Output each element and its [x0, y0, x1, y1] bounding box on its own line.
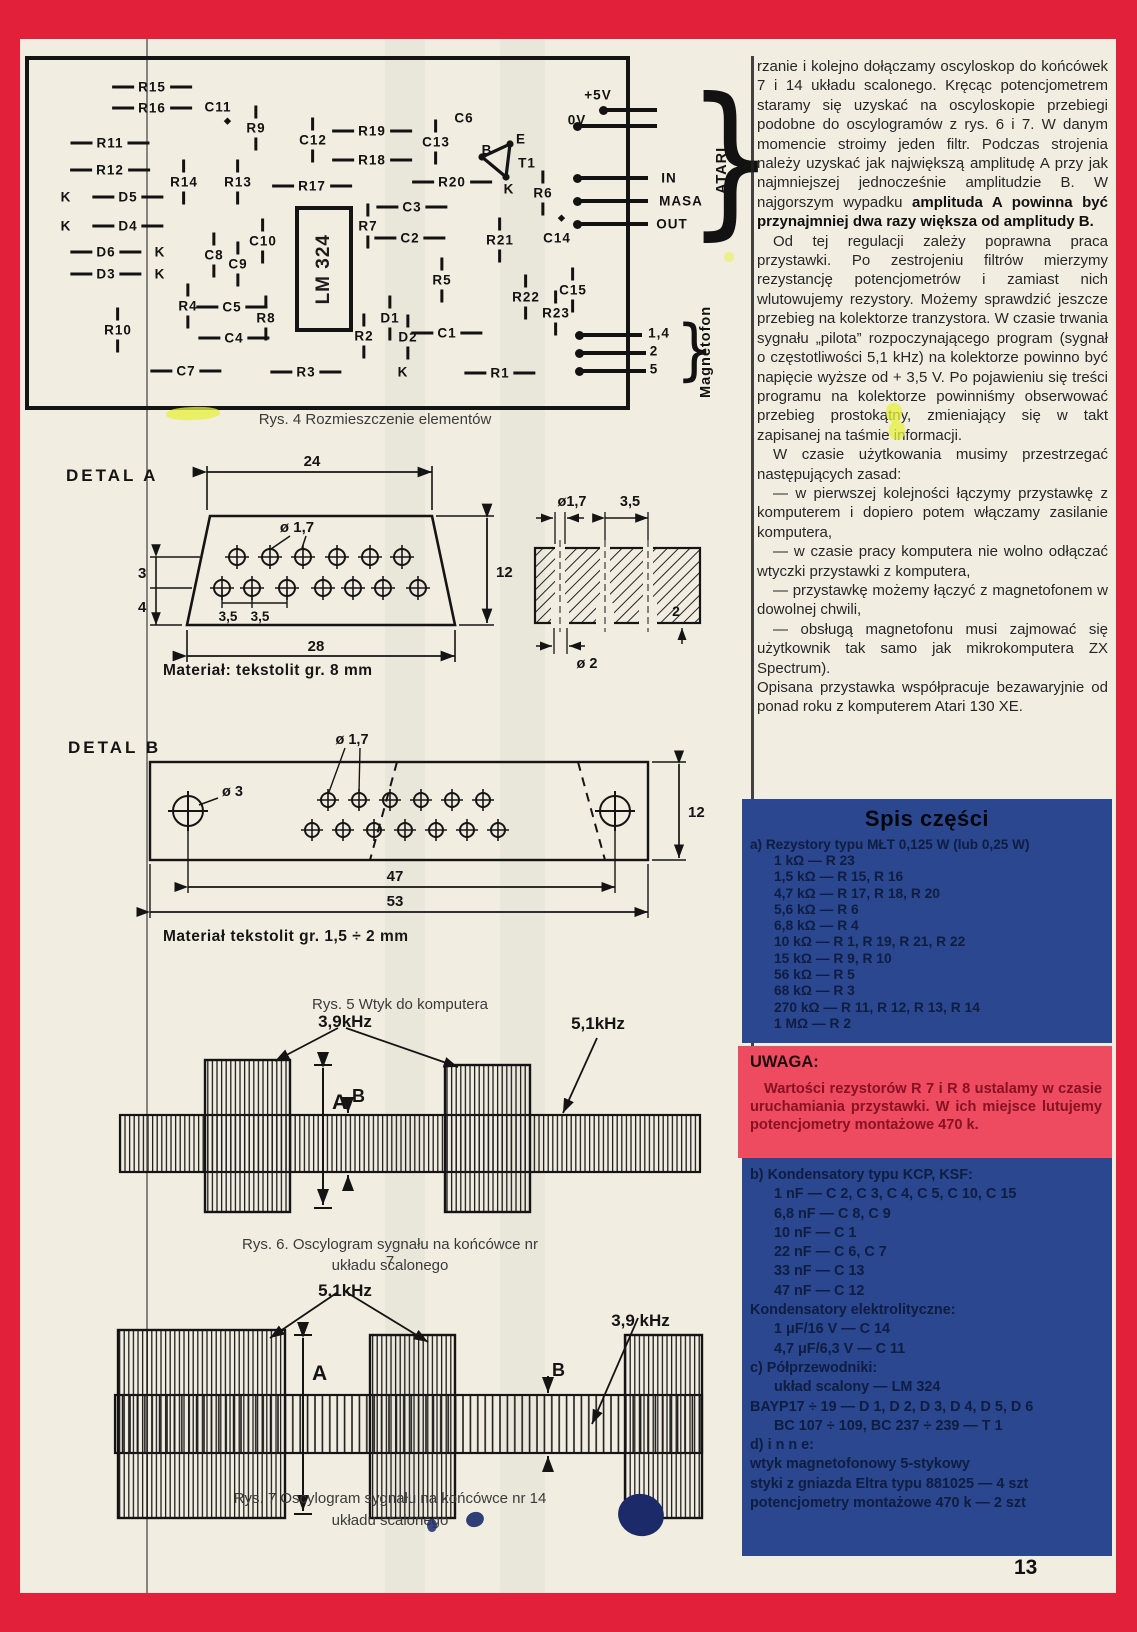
pcb-label: R5 [432, 256, 451, 305]
pcb-label: R13 [224, 158, 252, 207]
svg-text:28: 28 [308, 638, 325, 655]
pcb-label: R21 [486, 216, 514, 265]
parts-line: Kondensatory elektrolityczne: [750, 1301, 1104, 1320]
fig6-oscillogram: A B [100, 1012, 720, 1230]
pcb-wire [603, 108, 657, 112]
pcb-label: K [155, 267, 166, 282]
parts-line: d) i n n e: [750, 1436, 1104, 1455]
detal-b-drawing: ø 3 ø 1,7 12 47 53 [100, 700, 720, 935]
parts-resistors-lines: 1 kΩ — R 231,5 kΩ — R 15, R 164,7 kΩ — R… [742, 853, 1112, 1032]
pcb-label: IN [661, 171, 677, 186]
pcb-label: ◆ [558, 213, 566, 224]
pcb-wire [578, 222, 648, 226]
parts-line: 1 MΩ — R 2 [742, 1016, 1112, 1032]
pcb-solder-dot [575, 331, 584, 340]
pcb-label: K [61, 190, 72, 205]
parts-line: potencjometry montażowe 470 k — 2 szt [750, 1494, 1104, 1513]
parts-line: 4,7 kΩ — R 17, R 18, R 20 [742, 886, 1112, 902]
pcb-label: R14 [170, 158, 198, 207]
atari-connector-label: ATARI [714, 114, 730, 194]
parts-line: 22 nF — C 6, C 7 [750, 1243, 1104, 1262]
parts-line: 15 kΩ — R 9, R 10 [742, 951, 1112, 967]
pcb-wire [580, 369, 646, 373]
pcb-label: C14 [543, 231, 571, 246]
pcb-label: C13 [422, 118, 450, 167]
pcb-label: C7 [146, 364, 225, 379]
parts-line: 1 μF/16 V — C 14 [750, 1320, 1104, 1339]
pcb-label: D5 [88, 190, 167, 205]
pcb-solder-dot [575, 367, 584, 376]
pcb-wire [578, 199, 648, 203]
pcb-label: C10 [249, 217, 277, 266]
detal-b-material: Materiał tekstolit gr. 1,5 ÷ 2 mm [163, 928, 409, 946]
pcb-label: R15 [108, 80, 196, 95]
pcb-label: R22 [512, 273, 540, 322]
svg-text:ø 1,7: ø 1,7 [335, 732, 368, 748]
article-bullet: — przystawkę możemy łączyć z magnetofone… [757, 581, 1108, 620]
pcb-label: C12 [299, 116, 327, 165]
parts-list-box-resistors: Spis części a) Rezystory typu MŁT 0,125 … [742, 799, 1112, 1043]
highlighter-dot [724, 252, 734, 262]
parts-line: 68 kΩ — R 3 [742, 983, 1112, 999]
pcb-label: R6 [533, 169, 552, 218]
svg-text:B: B [352, 1086, 365, 1106]
fig5-caption: Rys. 5 Wtyk do komputera [275, 996, 525, 1013]
detal-a-material: Materiał: tekstolit gr. 8 mm [163, 662, 373, 680]
parts-resistors-header: a) Rezystory typu MŁT 0,125 W (lub 0,25 … [742, 832, 1112, 853]
svg-text:12: 12 [496, 564, 513, 581]
svg-text:3,5: 3,5 [251, 609, 270, 624]
transistor-t1-symbol [472, 134, 524, 192]
svg-text:2: 2 [672, 603, 680, 619]
parts-line: 6,8 kΩ — R 4 [742, 918, 1112, 934]
fig7-caption-line2: układu scalonego [220, 1512, 560, 1529]
pcb-wire [580, 351, 646, 355]
pcb-label: R16 [108, 101, 196, 116]
svg-text:24: 24 [304, 453, 321, 470]
parts-line: b) Kondensatory typu KCP, KSF: [750, 1166, 1104, 1185]
pcb-label: K [155, 245, 166, 260]
warning-title: UWAGA: [738, 1046, 1112, 1072]
pcb-label: R18 [328, 153, 416, 168]
pcb-label: R10 [104, 306, 132, 355]
highlighter-mark [889, 421, 905, 440]
pcb-wire [578, 176, 648, 180]
pcb-label: C1 [407, 326, 486, 341]
pcb-solder-dot [573, 220, 582, 229]
pcb-label: R11 [66, 136, 153, 151]
pcb-label: K [61, 219, 72, 234]
pcb-solder-dot [573, 197, 582, 206]
article-column: rzanie i kolejno dołączamy oscyloskop do… [757, 57, 1108, 717]
pcb-label: R1 [460, 366, 539, 381]
pcb-label: OUT [656, 217, 688, 232]
svg-text:B: B [552, 1360, 565, 1380]
article-paragraph: W czasie użytkowania musimy przestrzegać… [757, 445, 1108, 484]
svg-text:ø 3: ø 3 [222, 784, 243, 800]
svg-text:47: 47 [387, 868, 404, 885]
parts-line: 47 nF — C 12 [750, 1282, 1104, 1301]
article-paragraph: Od tej regulacji zależy poprawna praca p… [757, 232, 1108, 445]
parts-line: 4,7 μF/6,3 V — C 11 [750, 1340, 1104, 1359]
pcb-label: D6 [66, 245, 145, 260]
pcb-label: +5V [584, 88, 611, 103]
article-text: rzanie i kolejno dołączamy oscyloskop do… [757, 58, 1108, 211]
parts-line: 270 kΩ — R 11, R 12, R 13, R 14 [742, 1000, 1112, 1016]
parts-line: 10 nF — C 1 [750, 1224, 1104, 1243]
pcb-label: C2 [370, 231, 449, 246]
fig6-caption-line2: układu scalonego [240, 1257, 540, 1274]
pcb-label: R3 [266, 365, 345, 380]
warning-body: Wartości rezystorów R 7 i R 8 ustalamy w… [738, 1072, 1112, 1134]
pcb-label: R19 [328, 124, 416, 139]
svg-text:3,5: 3,5 [620, 494, 640, 510]
pcb-label: 1,4 [648, 326, 670, 341]
parts-line: 5,6 kΩ — R 6 [742, 902, 1112, 918]
svg-text:12: 12 [688, 804, 705, 821]
svg-text:ø1,7: ø1,7 [557, 494, 586, 510]
pcb-solder-dot [573, 174, 582, 183]
pcb-label: C8 [204, 231, 223, 280]
article-bullet: — obsługą magnetofonu musi zajmować się … [757, 620, 1108, 678]
pcb-solder-dot [599, 106, 608, 115]
parts-line: BAYP17 ÷ 19 — D 1, D 2, D 3, D 4, D 5, D… [750, 1398, 1104, 1417]
pcb-label: D1 [380, 294, 399, 343]
parts-line: wtyk magnetofonowy 5-stykowy [750, 1455, 1104, 1474]
pcb-solder-dot [573, 122, 582, 131]
magazine-page: R15R16C11◆R9C12R19C13C6R18R11R12R14R13R1… [0, 0, 1137, 1632]
fig4-caption: Rys. 4 Rozmieszczenie elementów [225, 411, 525, 428]
pcb-label: R2 [354, 312, 373, 361]
pcb-wire [580, 333, 642, 337]
pcb-label: D3 [66, 267, 145, 282]
parts-line: 1 kΩ — R 23 [742, 853, 1112, 869]
pcb-label: 2 [650, 344, 659, 359]
svg-text:3,5: 3,5 [219, 609, 238, 624]
pcb-label: R9 [246, 104, 265, 153]
parts-line: 6,8 nF — C 8, C 9 [750, 1205, 1104, 1224]
pcb-label: ◆ [224, 116, 232, 127]
svg-text:ø 2: ø 2 [577, 656, 598, 672]
parts-line: styki z gniazda Eltra typu 881025 — 4 sz… [750, 1475, 1104, 1494]
detal-a-drawing: 24 12 28 3 4 ø 1,7 3,5 3,5 [130, 440, 720, 692]
pcb-label: K [398, 365, 409, 380]
fig7-oscillogram: A B [90, 1278, 720, 1523]
parts-line: 1 nF — C 2, C 3, C 4, C 5, C 10, C 15 [750, 1185, 1104, 1204]
pcb-solder-dot [575, 349, 584, 358]
parts-line: c) Półprzewodniki: [750, 1359, 1104, 1378]
article-bullet: — w czasie pracy komputera nie wolno odł… [757, 542, 1108, 581]
parts-line: 10 kΩ — R 1, R 19, R 21, R 22 [742, 934, 1112, 950]
warning-box: UWAGA: Wartości rezystorów R 7 i R 8 ust… [738, 1046, 1112, 1158]
pcb-label: D4 [88, 219, 167, 234]
pcb-label: 5 [650, 362, 659, 377]
article-bullet: — w pierwszej kolejności łączymy przysta… [757, 484, 1108, 542]
article-paragraph: rzanie i kolejno dołączamy oscyloskop do… [757, 57, 1108, 232]
parts-line: układ scalony — LM 324 [750, 1378, 1104, 1397]
svg-text:53: 53 [387, 893, 404, 910]
ink-spot [427, 1519, 437, 1532]
svg-text:ø 1,7: ø 1,7 [280, 519, 314, 536]
parts-line: 1,5 kΩ — R 15, R 16 [742, 869, 1112, 885]
article-bullet-list: — w pierwszej kolejności łączymy przysta… [757, 484, 1108, 678]
parts-line: 56 kΩ — R 5 [742, 967, 1112, 983]
pcb-label: R17 [268, 179, 356, 194]
parts-line: 33 nF — C 13 [750, 1262, 1104, 1281]
svg-text:A: A [312, 1362, 327, 1385]
ic-lm324-outline: LM 324 [295, 206, 353, 332]
ic-lm324-label: LM 324 [313, 234, 335, 304]
article-paragraph: Opisana przystawka współpracuje bezawary… [757, 678, 1108, 717]
pcb-label: R12 [66, 163, 154, 178]
pcb-label: C9 [228, 240, 247, 289]
page-number: 13 [1014, 1556, 1037, 1580]
pcb-label: C4 [194, 331, 273, 346]
fig7-caption-line1: Rys. 7 Oscylogram sygnału na końcówce nr… [220, 1490, 560, 1507]
svg-text:4: 4 [138, 599, 147, 616]
parts-list-title: Spis części [742, 799, 1112, 832]
svg-text:A: A [332, 1091, 347, 1114]
parts-list-box-capacitors: b) Kondensatory typu KCP, KSF:1 nF — C 2… [742, 1158, 1112, 1556]
svg-text:3: 3 [138, 565, 146, 582]
magnetofon-connector-label: Magnetofon [698, 298, 714, 398]
highlighter-mark [886, 403, 902, 422]
pcb-label: R23 [542, 289, 570, 338]
pcb-label: C11 [204, 100, 231, 115]
parts-capacitors-lines: b) Kondensatory typu KCP, KSF:1 nF — C 2… [742, 1158, 1112, 1513]
pcb-wire [577, 124, 657, 128]
pcb-label: C6 [454, 111, 473, 126]
parts-line: BC 107 ÷ 109, BC 237 ÷ 239 — T 1 [750, 1417, 1104, 1436]
pcb-label: C3 [372, 200, 451, 215]
